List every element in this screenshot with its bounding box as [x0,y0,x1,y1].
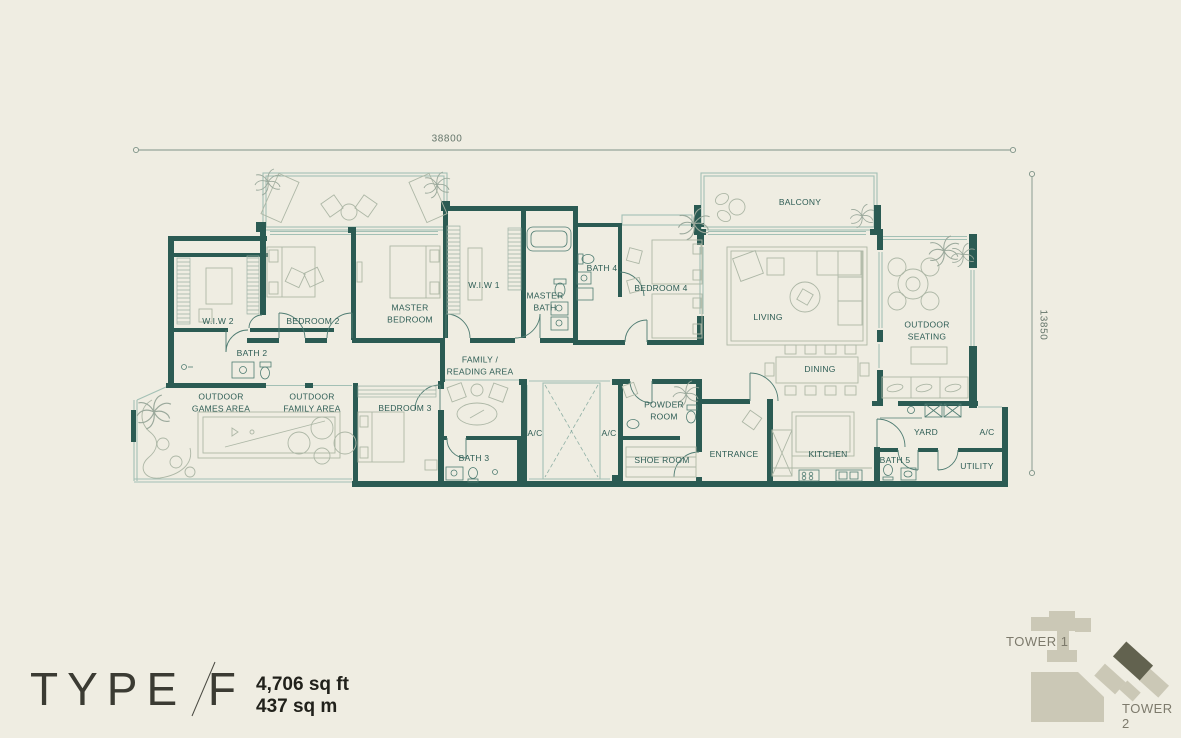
room-label-bedroom4: BEDROOM 4 [634,282,687,294]
room-label-ac-left: A/C [528,427,543,439]
room-label-dining: DINING [804,363,835,375]
room-label-ac-right: A/C [602,427,617,439]
dimension-height-label: 13850 [1038,310,1049,341]
room-label-bath5: BATH 5 [880,454,911,466]
room-label-entrance: ENTRANCE [710,448,759,460]
room-label-family-reading: FAMILY / READING AREA [447,354,514,379]
room-label-bedroom3: BEDROOM 3 [378,402,431,414]
room-label-master-bedroom: MASTER BEDROOM [387,302,433,327]
room-label-bath2: BATH 2 [237,347,268,359]
room-label-wiw1: W.I.W 1 [468,279,500,291]
room-label-outdoor-seating: OUTDOOR SEATING [904,319,949,344]
room-label-bath3: BATH 3 [459,452,490,464]
room-label-balcony: BALCONY [779,196,821,208]
dimension-width-label: 38800 [432,134,463,145]
tower1-label: TOWER 1 [1006,634,1069,649]
room-label-master-bath: MASTER BATH [527,290,564,315]
area-sqm-label: 437 sq m [256,696,337,718]
room-label-utility: UTILITY [960,460,993,472]
area-sqft-label: 4,706 sq ft [256,674,349,696]
unit-type-title: TYPE F [30,662,245,716]
room-label-outdoor-games: OUTDOOR GAMES AREA [192,391,250,416]
floorplan-page: BALCONYW.I.W 2BEDROOM 2MASTER BEDROOMW.I… [0,0,1181,738]
room-label-shoe-room: SHOE ROOM [634,454,689,466]
floorplan-drawing [0,0,1181,738]
room-label-bath4: BATH 4 [587,262,618,274]
room-label-powder-room: POWDER ROOM [644,399,684,424]
room-label-bedroom2: BEDROOM 2 [286,315,339,327]
room-label-ac-yard: A/C [980,426,995,438]
room-label-kitchen: KITCHEN [808,448,847,460]
tower2-label: TOWER 2 [1122,701,1181,731]
room-label-living: LIVING [753,311,782,323]
room-label-wiw2: W.I.W 2 [202,315,234,327]
room-label-outdoor-family: OUTDOOR FAMILY AREA [283,391,340,416]
room-label-yard: YARD [914,426,938,438]
